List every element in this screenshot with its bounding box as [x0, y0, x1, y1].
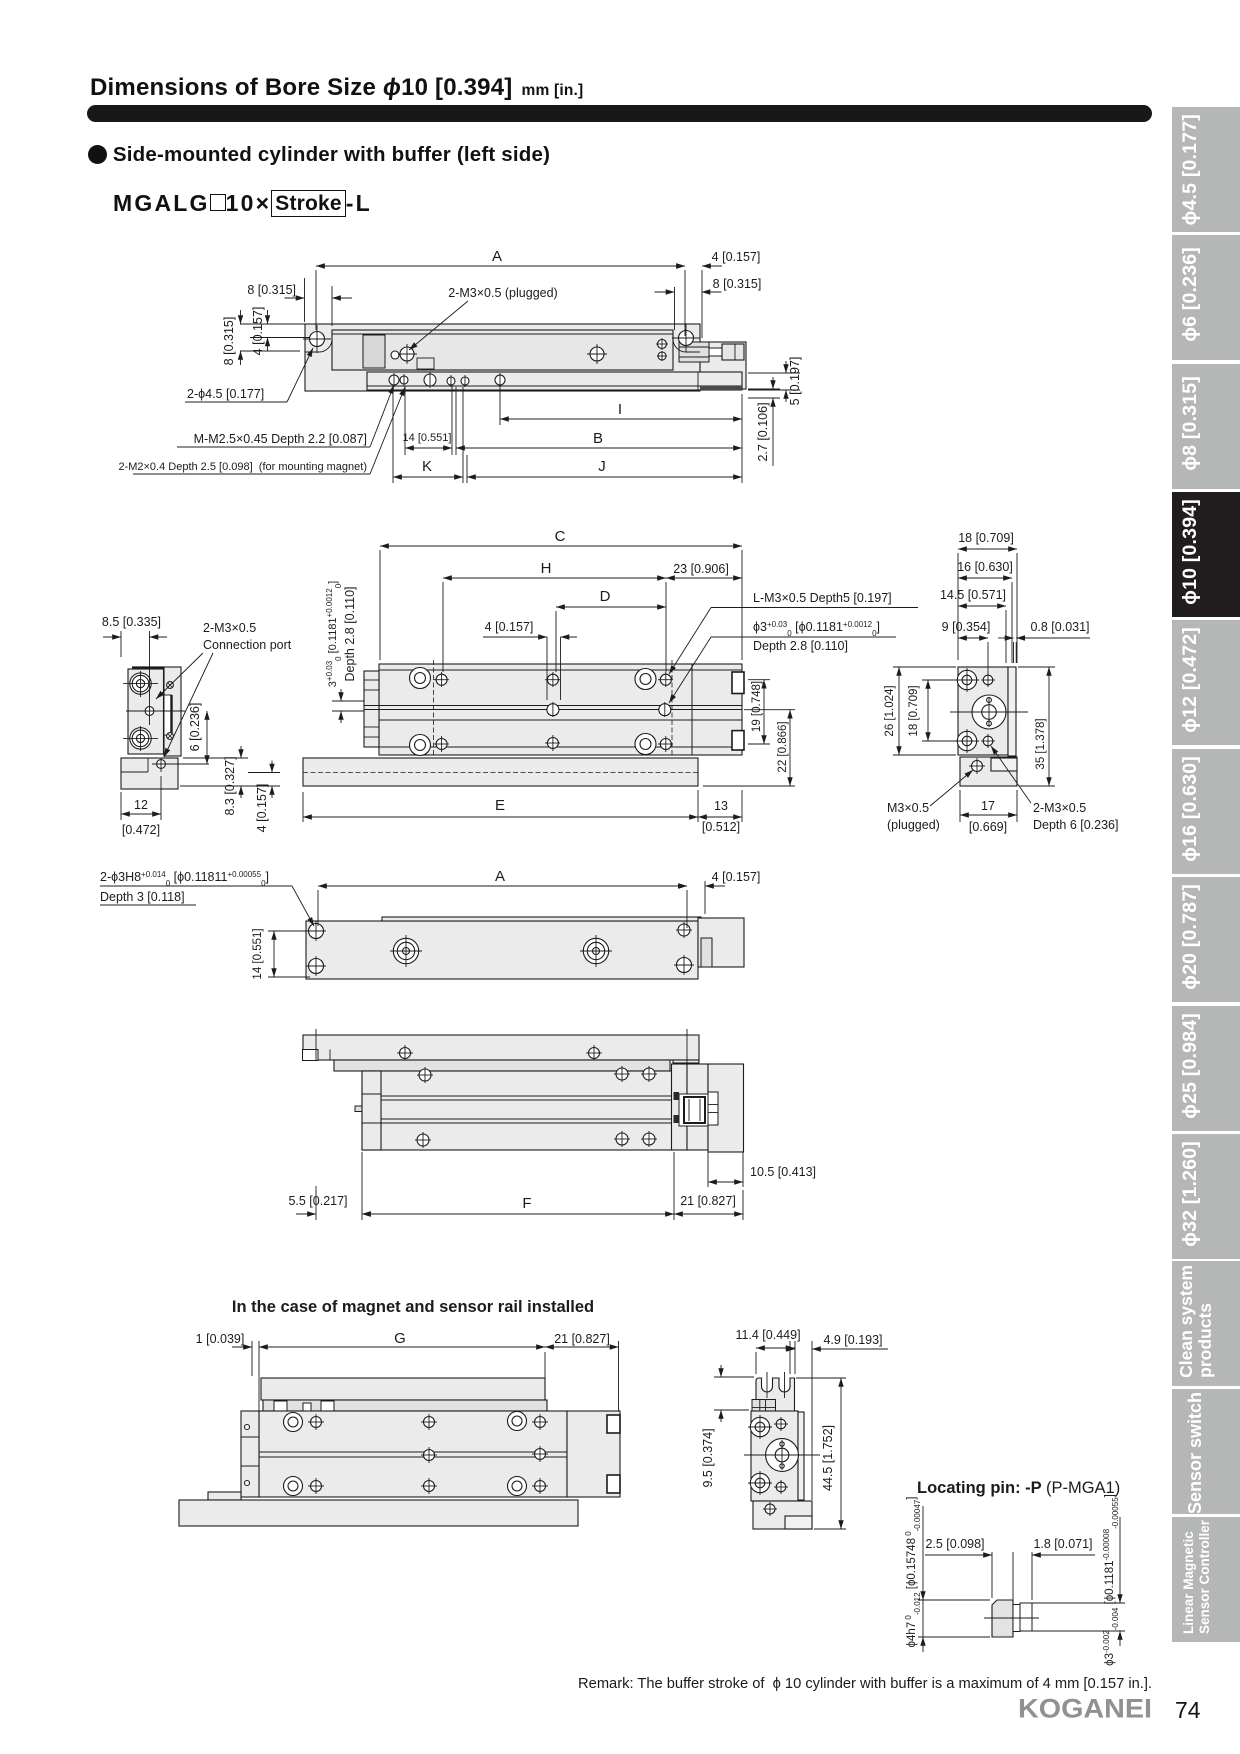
svg-text:[0.472]: [0.472]: [122, 823, 160, 837]
svg-text:Depth 3 [0.118]: Depth 3 [0.118]: [100, 890, 185, 904]
svg-text:F: F: [522, 1195, 531, 1212]
svg-text:18 [0.709]: 18 [0.709]: [908, 685, 920, 736]
svg-text:Connection port: Connection port: [203, 638, 292, 652]
svg-text:13: 13: [714, 799, 728, 813]
svg-text:[0.512]: [0.512]: [702, 820, 740, 834]
svg-text:17: 17: [981, 799, 995, 813]
svg-text:M-M2.5×0.45 Depth 2.2 [0.087]: M-M2.5×0.45 Depth 2.2 [0.087]: [194, 432, 367, 446]
svg-text:I: I: [618, 401, 622, 418]
svg-text:3+0.030 [0.1181+0.00120]: 3+0.030 [0.1181+0.00120]: [325, 581, 343, 687]
svg-text:8.5 [0.335]: 8.5 [0.335]: [102, 615, 161, 629]
svg-text:10.5 [0.413]: 10.5 [0.413]: [750, 1165, 816, 1179]
svg-text:[0.669]: [0.669]: [969, 820, 1007, 834]
svg-text:H: H: [541, 560, 552, 577]
svg-text:14 [0.551]: 14 [0.551]: [252, 928, 264, 979]
svg-text:12: 12: [134, 798, 148, 812]
svg-text:8 [0.315]: 8 [0.315]: [247, 283, 296, 297]
svg-text:18 [0.709]: 18 [0.709]: [958, 531, 1014, 545]
svg-text:ϕ4h7 0-0.012 [ϕ0.15748 0-0.000: ϕ4h7 0-0.012 [ϕ0.15748 0-0.00047]: [904, 1497, 922, 1648]
svg-text:4 [0.157]: 4 [0.157]: [255, 784, 269, 833]
svg-text:21 [0.827]: 21 [0.827]: [554, 1332, 610, 1346]
svg-text:J: J: [598, 458, 606, 475]
svg-text:1.8 [0.071]: 1.8 [0.071]: [1033, 1537, 1092, 1551]
svg-text:Depth 2.8 [0.110]: Depth 2.8 [0.110]: [753, 639, 848, 653]
svg-text:A: A: [495, 868, 505, 885]
svg-text:19 [0.748]: 19 [0.748]: [751, 681, 763, 732]
svg-text:16 [0.630]: 16 [0.630]: [957, 560, 1013, 574]
svg-text:8 [0.315]: 8 [0.315]: [222, 317, 236, 366]
svg-text:4 [0.157]: 4 [0.157]: [251, 307, 265, 356]
svg-text:2.7 [0.106]: 2.7 [0.106]: [756, 402, 770, 461]
svg-text:2-ϕ4.5 [0.177]: 2-ϕ4.5 [0.177]: [187, 387, 264, 401]
svg-text:2-ϕ3H8+0.0140 [ϕ0.11811+0.0005: 2-ϕ3H8+0.0140 [ϕ0.11811+0.000550]: [100, 870, 269, 888]
svg-text:M3×0.5: M3×0.5: [887, 801, 929, 815]
svg-text:D: D: [600, 588, 611, 605]
svg-text:8.3 [0.327]: 8.3 [0.327]: [223, 756, 237, 815]
svg-text:4 [0.157]: 4 [0.157]: [485, 620, 534, 634]
svg-text:9.5 [0.374]: 9.5 [0.374]: [701, 1428, 715, 1487]
svg-text:44.5 [1.752]: 44.5 [1.752]: [821, 1425, 835, 1491]
svg-text:A: A: [492, 248, 502, 265]
svg-text:5.5 [0.217]: 5.5 [0.217]: [288, 1194, 347, 1208]
svg-text:14.5 [0.571]: 14.5 [0.571]: [940, 588, 1006, 602]
svg-text:1 [0.039]: 1 [0.039]: [196, 1332, 245, 1346]
svg-text:ϕ3-0.002-0.004 [ϕ0.1181-0.0000: ϕ3-0.002-0.004 [ϕ0.1181-0.00008-0.00055]: [1102, 1494, 1120, 1666]
svg-text:8 [0.315]: 8 [0.315]: [713, 277, 762, 291]
svg-text:4 [0.157]: 4 [0.157]: [712, 870, 761, 884]
svg-text:4 [0.157]: 4 [0.157]: [712, 250, 761, 264]
svg-text:2-M3×0.5: 2-M3×0.5: [203, 621, 256, 635]
svg-text:ϕ3+0.030 [ϕ0.1181+0.00120]: ϕ3+0.030 [ϕ0.1181+0.00120]: [753, 620, 880, 638]
svg-text:23 [0.906]: 23 [0.906]: [673, 562, 729, 576]
svg-text:E: E: [495, 797, 505, 814]
svg-text:4.9 [0.193]: 4.9 [0.193]: [823, 1333, 882, 1347]
svg-text:5 [0.197]: 5 [0.197]: [788, 357, 802, 406]
svg-text:2-M3×0.5 (plugged): 2-M3×0.5 (plugged): [448, 286, 557, 300]
svg-text:(plugged): (plugged): [887, 818, 940, 832]
svg-text:35 [1.378]: 35 [1.378]: [1035, 718, 1047, 769]
svg-text:14 [0.551]: 14 [0.551]: [403, 432, 452, 444]
svg-text:2-M2×0.4 Depth 2.5 [0.098] (f: 2-M2×0.4 Depth 2.5 [0.098] (for mounting…: [118, 461, 367, 473]
svg-text:6 [0.236]: 6 [0.236]: [188, 703, 202, 752]
svg-text:Depth 6 [0.236]: Depth 6 [0.236]: [1033, 818, 1118, 832]
svg-text:G: G: [394, 1330, 406, 1347]
svg-text:B: B: [593, 430, 603, 447]
svg-text:26 [1.024]: 26 [1.024]: [884, 685, 896, 736]
svg-text:In the case of magnet and sens: In the case of magnet and sensor rail in…: [232, 1298, 594, 1316]
svg-text:2-M3×0.5: 2-M3×0.5: [1033, 801, 1086, 815]
svg-text:Depth 2.8 [0.110]: Depth 2.8 [0.110]: [343, 587, 357, 682]
svg-text:21 [0.827]: 21 [0.827]: [680, 1194, 736, 1208]
svg-text:KOGANEI: KOGANEI: [1018, 1694, 1152, 1722]
svg-text:Remark: The buffer stroke of: Remark: The buffer stroke of ϕ 10 cylind…: [578, 1676, 1152, 1692]
svg-text:K: K: [422, 458, 432, 475]
svg-text:11.4 [0.449]: 11.4 [0.449]: [735, 1328, 800, 1342]
svg-text:0.8 [0.031]: 0.8 [0.031]: [1030, 620, 1089, 634]
svg-text:22 [0.866]: 22 [0.866]: [777, 721, 789, 772]
svg-text:L-M3×0.5 Depth5 [0.197]: L-M3×0.5 Depth5 [0.197]: [753, 591, 892, 605]
svg-text:Locating pin: -P (P-MGA1): Locating pin: -P (P-MGA1): [917, 1479, 1120, 1497]
svg-text:2.5 [0.098]: 2.5 [0.098]: [925, 1537, 984, 1551]
svg-text:9 [0.354]: 9 [0.354]: [942, 620, 991, 634]
svg-text:C: C: [555, 528, 566, 545]
